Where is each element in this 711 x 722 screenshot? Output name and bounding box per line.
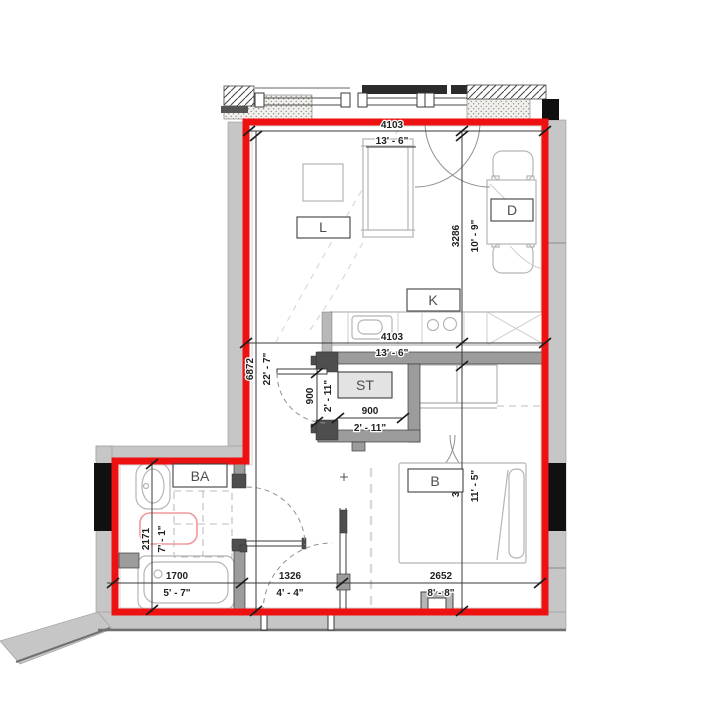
tv-cabinet (363, 139, 413, 237)
dim-bathroom-width-imperial: 5' - 7" (163, 588, 190, 599)
lintel-left (221, 106, 248, 113)
kitchen-wall (318, 352, 545, 364)
room-label-bathroom: BA (191, 468, 210, 484)
dim-unit-depth-imperial: 22' - 7" (262, 352, 273, 385)
dim-storage-width-mm: 900 (362, 406, 379, 417)
bathroom-door-leaf (246, 541, 305, 546)
window-post (341, 93, 350, 107)
tub-wall-stub (119, 553, 139, 568)
survey-cross (340, 473, 348, 481)
dim-living-depth-mm: 3286 (451, 224, 462, 247)
kitchen-counter (322, 312, 545, 353)
dim-hall-width-imperial: 4' - 4" (276, 588, 303, 599)
washbasin-bowl (142, 469, 164, 503)
exterior-wall-right (546, 120, 566, 612)
bathroom-door-post-top (232, 474, 246, 488)
door-post (358, 93, 367, 107)
counter-end-panel (322, 312, 332, 353)
balcony-door-swing (425, 122, 490, 187)
bedroom-furniture (399, 365, 543, 563)
dim-bedroom-depth-imperial: 11' - 5" (470, 470, 481, 502)
bathtub-drain (154, 570, 162, 578)
exterior-wall-diagonal (0, 612, 112, 664)
dim-living-depth-imperial: 10' - 9" (470, 219, 481, 252)
dim-top-mm: 4103 (381, 120, 404, 131)
insulation-band-right (467, 99, 530, 119)
hatch-block-right (467, 85, 546, 99)
room-label-living: L (319, 219, 327, 235)
exterior-wall-left-upper (228, 122, 244, 458)
hatch-block-left (224, 86, 254, 106)
dim-top-imperial: 13' - 6" (376, 136, 409, 147)
room-label-bedroom: B (430, 473, 439, 489)
storage-door-swing (277, 373, 327, 423)
top-facade (221, 85, 546, 119)
dim-storage-door-imperial: 2' - 11" (323, 380, 334, 412)
entry-frame-post (328, 613, 334, 630)
washbasin (136, 463, 170, 509)
floor-plan-canvas: 4103 13' - 6" 4103 13' - 6" 3286 10' - 9… (0, 0, 711, 722)
tap (144, 484, 149, 489)
room-label-dining: D (507, 202, 517, 218)
window-post (255, 93, 264, 107)
entry-frame-post (261, 613, 267, 630)
dim-bedroom-width-mm: 2652 (430, 571, 453, 582)
balcony-door-swing (415, 122, 480, 187)
door-post (425, 93, 434, 107)
floor-plan-page: 4103 13' - 6" 4103 13' - 6" 3286 10' - 9… (0, 0, 711, 722)
dim-kitchen-mm: 4103 (381, 332, 404, 343)
dim-unit-depth-mm: 6872 (245, 357, 256, 380)
structural-wall-right (546, 463, 566, 531)
dim-bathroom-depth-mm: 2171 (141, 527, 152, 550)
dim-bathroom-depth-imperial: 7' - 1" (157, 525, 168, 552)
room-label-kitchen: K (428, 292, 438, 308)
dim-storage-width-imperial: 2' - 11" (354, 423, 386, 434)
storage-door-post-bottom (316, 420, 338, 440)
dim-storage-door-mm: 900 (305, 387, 316, 404)
dim-hall-width-mm: 1326 (279, 571, 302, 582)
coffee-table (303, 164, 343, 201)
dim-kitchen-imperial: 13' - 6" (376, 348, 409, 359)
structural-wall-top-right (542, 99, 559, 120)
room-label-storage: ST (356, 377, 374, 393)
structural-wall-left (94, 463, 114, 531)
dim-bedroom-width-imperial: 8' - 8" (427, 588, 454, 599)
dim-bathroom-width-mm: 1700 (166, 571, 189, 582)
